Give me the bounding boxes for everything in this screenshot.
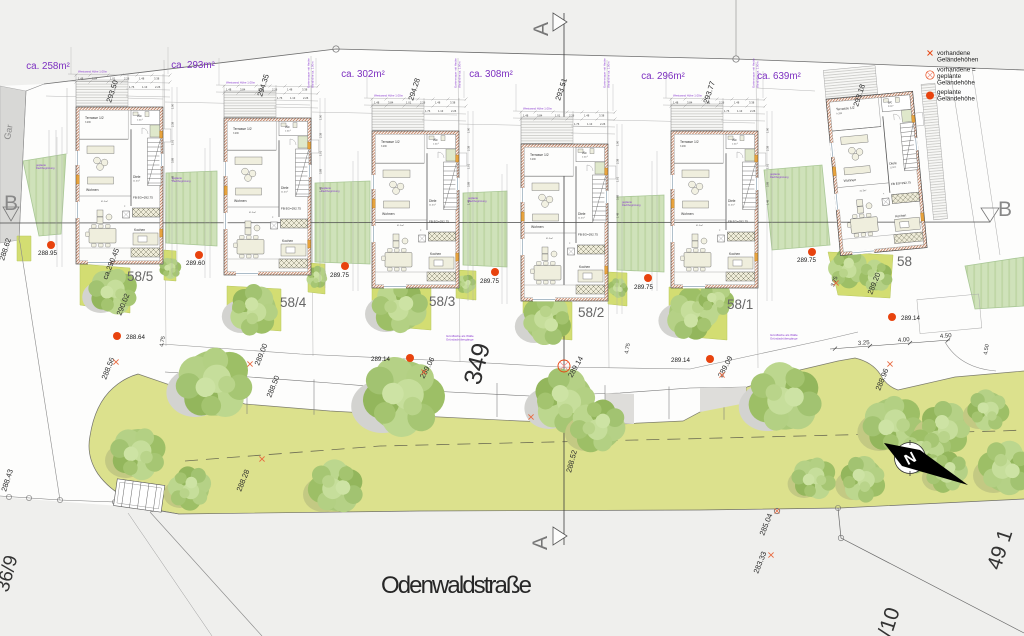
svg-text:3.84: 3.84 — [388, 101, 394, 105]
svg-text:3.88: 3.88 — [616, 194, 620, 200]
svg-text:1.48: 1.48 — [616, 212, 620, 218]
svg-text:288.64: 288.64 — [126, 334, 145, 341]
svg-text:Wandhöhe ca. 1.00m: Wandhöhe ca. 1.00m — [756, 61, 760, 88]
svg-text:1.13: 1.13 — [290, 96, 296, 100]
svg-text:B: B — [4, 192, 18, 215]
svg-text:1.48: 1.48 — [78, 77, 84, 81]
svg-text:Wandhöhe ca. 1.00m: Wandhöhe ca. 1.00m — [607, 61, 611, 88]
svg-text:1.48: 1.48 — [523, 114, 529, 118]
svg-text:1.48: 1.48 — [673, 101, 679, 105]
svg-text:1.48: 1.48 — [766, 199, 770, 205]
svg-text:Odenwaldstraße: Odenwaldstraße — [381, 572, 532, 599]
svg-text:ca. 296m²: ca. 296m² — [641, 71, 685, 82]
svg-text:289.14: 289.14 — [671, 357, 690, 364]
svg-text:Wandhöhe ca. 1.00m: Wandhöhe ca. 1.00m — [458, 61, 462, 88]
svg-text:58/4: 58/4 — [280, 295, 307, 310]
svg-text:1.01: 1.01 — [467, 163, 471, 169]
svg-text:289.75: 289.75 — [797, 257, 816, 264]
svg-text:289.60: 289.60 — [186, 260, 205, 267]
svg-text:1.48: 1.48 — [226, 88, 232, 92]
svg-text:2.38: 2.38 — [319, 132, 323, 138]
svg-text:58/5: 58/5 — [127, 269, 153, 284]
svg-text:3.88: 3.88 — [766, 181, 770, 187]
svg-text:1.76: 1.76 — [724, 109, 730, 113]
svg-text:Geländehöhe: Geländehöhe — [937, 96, 975, 103]
svg-text:A: A — [529, 536, 552, 550]
svg-text:1.48: 1.48 — [584, 114, 590, 118]
svg-text:Dachbegrünung: Dachbegrünung — [622, 203, 641, 207]
svg-text:Dachbegrünung: Dachbegrünung — [468, 199, 487, 203]
svg-text:288.95: 288.95 — [38, 250, 57, 257]
svg-text:3.38: 3.38 — [749, 101, 755, 105]
svg-text:2.26: 2.26 — [272, 88, 278, 92]
svg-text:3.84: 3.84 — [92, 77, 98, 81]
svg-text:2.26: 2.26 — [719, 101, 725, 105]
svg-text:1.48: 1.48 — [287, 88, 293, 92]
svg-text:2.26: 2.26 — [569, 114, 575, 118]
svg-text:1.76: 1.76 — [574, 122, 580, 126]
svg-text:1.48: 1.48 — [734, 101, 740, 105]
svg-text:ca. 258m²: ca. 258m² — [26, 61, 70, 72]
svg-text:2.38: 2.38 — [467, 145, 471, 151]
svg-text:ca. 302m²: ca. 302m² — [341, 69, 385, 80]
svg-text:1.00: 1.00 — [319, 114, 323, 120]
svg-text:2.38: 2.38 — [766, 145, 770, 151]
svg-text:ca. 639m²: ca. 639m² — [757, 71, 801, 82]
svg-text:3.88: 3.88 — [171, 157, 175, 163]
svg-text:2.26: 2.26 — [451, 109, 457, 113]
svg-text:2.38: 2.38 — [616, 158, 620, 164]
svg-text:Westwand Höhe 1.00m: Westwand Höhe 1.00m — [673, 94, 703, 98]
svg-text:1.13: 1.13 — [737, 109, 743, 113]
svg-text:Westwand Höhe 1.00m: Westwand Höhe 1.00m — [78, 70, 108, 74]
svg-text:1.48: 1.48 — [374, 101, 380, 105]
svg-text:1.13: 1.13 — [587, 122, 593, 126]
svg-text:1.00: 1.00 — [766, 127, 770, 133]
svg-text:289.75: 289.75 — [480, 278, 499, 285]
svg-text:4.50: 4.50 — [940, 333, 953, 340]
svg-text:Dachbegrünung: Dachbegrünung — [172, 179, 191, 183]
svg-text:Wandhöhe ca. 1.00m: Wandhöhe ca. 1.00m — [311, 61, 315, 88]
svg-text:ca. 293m²: ca. 293m² — [171, 60, 215, 71]
svg-text:1.01: 1.01 — [766, 163, 770, 169]
svg-text:3.84: 3.84 — [537, 114, 543, 118]
svg-text:1.00: 1.00 — [171, 103, 175, 109]
svg-text:1.76: 1.76 — [129, 85, 135, 89]
svg-text:58: 58 — [897, 254, 912, 269]
svg-text:ca. 308m²: ca. 308m² — [469, 69, 513, 80]
svg-text:1.01: 1.01 — [555, 114, 561, 118]
svg-text:58/2: 58/2 — [578, 305, 604, 320]
svg-text:1.13: 1.13 — [142, 85, 148, 89]
svg-text:2.26: 2.26 — [600, 122, 606, 126]
svg-text:58/1: 58/1 — [727, 297, 753, 312]
svg-text:289.14: 289.14 — [371, 356, 390, 363]
svg-text:3.38: 3.38 — [599, 114, 605, 118]
svg-text:3.38: 3.38 — [450, 101, 456, 105]
svg-text:3.88: 3.88 — [319, 168, 323, 174]
svg-text:A: A — [530, 22, 553, 36]
svg-text:2.26: 2.26 — [750, 109, 756, 113]
svg-text:1.01: 1.01 — [171, 139, 175, 145]
svg-text:1.01: 1.01 — [616, 176, 620, 182]
svg-text:1.13: 1.13 — [438, 109, 444, 113]
svg-text:3.88: 3.88 — [467, 181, 471, 187]
svg-text:1.01: 1.01 — [319, 150, 323, 156]
svg-text:3.38: 3.38 — [154, 77, 160, 81]
svg-text:1.48: 1.48 — [435, 101, 441, 105]
svg-text:289.14: 289.14 — [901, 315, 920, 322]
svg-text:2.38: 2.38 — [171, 121, 175, 127]
svg-text:289.75: 289.75 — [634, 284, 653, 291]
svg-text:Westwand Höhe 1.00m: Westwand Höhe 1.00m — [374, 94, 404, 98]
svg-text:Dachbegrünung: Dachbegrünung — [321, 189, 340, 193]
svg-text:2.26: 2.26 — [124, 77, 130, 81]
svg-text:B: B — [998, 198, 1012, 221]
svg-text:Westwand Höhe 1.00m: Westwand Höhe 1.00m — [523, 107, 553, 111]
svg-text:1.00: 1.00 — [467, 127, 471, 133]
svg-text:Westwand Höhe 1.00m: Westwand Höhe 1.00m — [226, 81, 256, 85]
svg-text:2.26: 2.26 — [303, 96, 309, 100]
svg-text:Gründachübergänge: Gründachübergänge — [770, 337, 798, 341]
svg-text:Dachbegrünung: Dachbegrünung — [770, 175, 789, 179]
svg-text:58/3: 58/3 — [429, 294, 455, 309]
svg-text:Dachbegrünung: Dachbegrünung — [36, 166, 55, 170]
svg-text:4.00: 4.00 — [898, 337, 911, 344]
svg-text:289.75: 289.75 — [330, 272, 349, 279]
svg-text:3.84: 3.84 — [240, 88, 246, 92]
svg-text:Geländehöhen: Geländehöhen — [937, 57, 979, 64]
svg-text:Geländehöhe: Geländehöhe — [937, 80, 975, 87]
svg-text:3.25: 3.25 — [858, 340, 871, 347]
svg-text:1.76: 1.76 — [425, 109, 431, 113]
svg-text:2.26: 2.26 — [420, 101, 426, 105]
svg-text:1.76: 1.76 — [277, 96, 283, 100]
svg-text:1.48: 1.48 — [139, 77, 145, 81]
svg-text:2.26: 2.26 — [155, 85, 161, 89]
svg-text:3.84: 3.84 — [687, 101, 693, 105]
svg-text:1.00: 1.00 — [616, 140, 620, 146]
